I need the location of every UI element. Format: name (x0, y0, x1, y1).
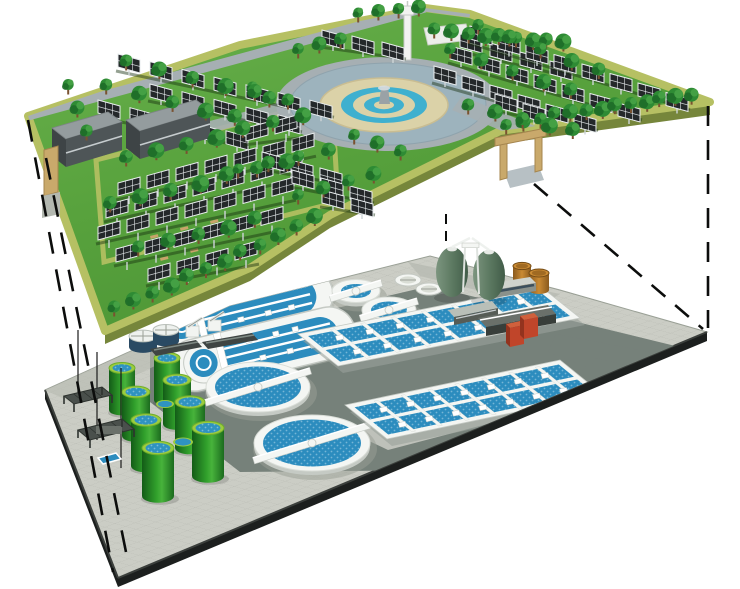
tree-canopy-light (522, 113, 529, 120)
tank-body (142, 448, 174, 503)
tree-canopy-light (192, 72, 199, 79)
tree-canopy-light (586, 105, 593, 112)
tree-canopy-light (505, 119, 511, 125)
tree-canopy-light (272, 116, 279, 123)
tree-canopy-light (318, 38, 326, 46)
tree-canopy-light (277, 229, 285, 237)
tree-canopy-light (540, 113, 547, 120)
tree-canopy-light (171, 279, 180, 288)
cutaway-scene-svg (0, 0, 740, 589)
tree-canopy-light (322, 182, 330, 190)
ground-mixer-pad (156, 400, 174, 408)
ditch-weir-box (272, 331, 279, 337)
tree-canopy-light (450, 25, 458, 33)
tree-canopy-light (205, 263, 212, 270)
tree-canopy-light (172, 96, 179, 103)
egg-cap (447, 247, 457, 252)
tree-canopy-light (569, 105, 577, 113)
scene-illustration (0, 0, 740, 589)
tree-canopy-light (348, 175, 355, 182)
tree-canopy-light (155, 144, 164, 153)
tree-canopy-light (268, 92, 275, 99)
tree-canopy-light (494, 105, 502, 113)
tree-canopy-shade (392, 7, 399, 14)
ditch-weir-box (223, 299, 230, 305)
tree-canopy-light (449, 43, 455, 49)
tree-canopy-light (545, 33, 552, 40)
tower-shaft (404, 14, 411, 60)
clarifier-hub (352, 287, 360, 295)
tree-canopy-light (186, 269, 194, 277)
tree-canopy-light (216, 131, 225, 140)
tree-canopy-light (398, 3, 404, 9)
tree-canopy-light (137, 241, 144, 248)
tree-canopy-light (226, 168, 234, 176)
ditch-weir-box (287, 348, 294, 354)
tree-canopy-shade (292, 154, 299, 161)
tree-canopy-light (571, 54, 579, 62)
ditch-weir-box (292, 326, 299, 332)
tree-canopy-light (418, 1, 426, 9)
tree-canopy-shade (444, 47, 451, 54)
tree-canopy-light (562, 35, 571, 44)
tree-canopy-light (572, 123, 580, 131)
tree-canopy-light (357, 8, 363, 14)
tank-water-texture (113, 364, 132, 372)
tree-canopy-light (353, 129, 359, 135)
tree-canopy-light (512, 65, 519, 72)
mixer-water (175, 438, 191, 445)
tree-canopy-light (259, 239, 266, 246)
tree-canopy-light (242, 122, 250, 130)
tree-canopy-light (373, 167, 381, 175)
tree-canopy-light (125, 151, 132, 158)
hopper-body (208, 320, 221, 331)
hopper-body (186, 326, 199, 337)
tree-canopy-light (167, 234, 175, 242)
tree-canopy-light (200, 177, 209, 186)
tree-canopy-light (508, 31, 516, 39)
tree-canopy-light (254, 212, 262, 220)
clarifier (204, 362, 317, 421)
tree-canopy-light (254, 85, 262, 93)
clarifier-hub (308, 439, 316, 447)
tree-canopy-light (228, 221, 237, 230)
tree-canopy-shade (348, 133, 355, 140)
tree-canopy-light (132, 293, 140, 301)
gantry-platform (462, 243, 479, 248)
tree (62, 79, 74, 95)
tree-canopy-light (377, 5, 384, 12)
ditch-weir-box (238, 316, 245, 322)
tree-canopy-light (328, 144, 336, 152)
tree-canopy-light (691, 89, 699, 97)
tree-canopy-light (125, 55, 132, 62)
tree-canopy-light (224, 255, 232, 263)
tank-water-texture (146, 443, 171, 453)
entrance-gate-east (495, 128, 546, 188)
tree-canopy-light (467, 99, 474, 106)
tree-canopy-shade (500, 123, 507, 130)
tree-canopy-light (158, 63, 166, 71)
tree-canopy-light (477, 19, 483, 25)
tree-canopy-light (480, 54, 488, 62)
ditch-weir-box (270, 288, 277, 294)
tree-canopy-light (152, 287, 159, 294)
sludge-digester-egg (471, 250, 507, 306)
tree-canopy-light (67, 79, 73, 85)
tree-canopy-shade (62, 83, 69, 90)
tree-canopy-light (267, 157, 274, 164)
tree-canopy-light (433, 23, 440, 30)
tree-canopy-light (400, 145, 407, 152)
tree-canopy-light (138, 87, 146, 95)
tree-canopy-light (186, 138, 194, 146)
tank-water-texture (196, 423, 221, 433)
tree-canopy-light (570, 83, 577, 90)
tree-canopy-light (598, 63, 605, 70)
fountain-spray (378, 86, 390, 91)
covered-tank-small (395, 274, 421, 286)
tree-canopy-shade (292, 47, 299, 54)
green-storage-tank (141, 441, 179, 504)
tree-canopy-light (225, 80, 234, 89)
tree-canopy-light (658, 92, 665, 99)
ditch-weir-box (260, 354, 267, 360)
tree-canopy-light (340, 33, 347, 40)
tree-canopy-light (540, 43, 547, 50)
tree-canopy-shade (233, 167, 239, 173)
drum-top-inner (532, 270, 546, 276)
pump-house-side (506, 324, 510, 347)
ground-mixer-pad (173, 438, 193, 447)
covered-tank-small (416, 283, 442, 295)
tree-canopy-light (674, 90, 683, 99)
tree-canopy-light (237, 164, 243, 170)
tree-canopy-light (298, 151, 304, 157)
tank-water-texture (126, 388, 147, 396)
tree-canopy-light (302, 109, 311, 118)
tank-water-texture (179, 397, 202, 406)
tree-canopy-light (614, 98, 622, 106)
tree-canopy-light (205, 104, 214, 113)
tree-canopy-light (543, 75, 551, 83)
tree-canopy-light (234, 110, 242, 118)
tank-water-texture (135, 415, 158, 424)
tree-canopy-light (297, 189, 303, 195)
tank-water-texture (158, 354, 177, 362)
tree-canopy-light (109, 197, 116, 204)
pump-house-front (524, 317, 538, 339)
tree-canopy-light (553, 107, 560, 114)
tree-canopy-shade (292, 193, 299, 200)
ditch-weir-box (265, 310, 272, 316)
tree-canopy-light (296, 220, 303, 227)
tree-canopy-light (549, 119, 558, 128)
clarifier-hub (385, 306, 393, 314)
tree-canopy-light (287, 94, 294, 101)
tree-canopy-light (105, 79, 112, 86)
tree-canopy-light (314, 210, 323, 219)
tree-canopy-light (630, 98, 637, 105)
inlet-tank (153, 325, 179, 347)
tree-canopy-shade (353, 11, 359, 17)
mixer-water (158, 401, 172, 407)
tree-canopy-light (86, 125, 93, 132)
tree-canopy-light (376, 137, 384, 145)
tree-canopy-light (113, 301, 120, 308)
tree-canopy-light (198, 228, 205, 235)
egg-cap (484, 250, 494, 255)
clarifier (253, 415, 377, 480)
green-storage-tank (191, 421, 229, 484)
tree-canopy-light (297, 43, 303, 49)
clarifier-hub (254, 383, 262, 391)
pump-house-side (520, 316, 524, 339)
ditch-weir-box (250, 293, 257, 299)
tree-canopy-shade (472, 23, 479, 30)
tank-body (192, 428, 224, 483)
tree-canopy-light (76, 102, 84, 110)
tree-canopy-light (139, 190, 148, 199)
tree-canopy-light (239, 245, 246, 252)
tank-water-texture (167, 376, 188, 384)
tree-canopy-light (170, 184, 178, 192)
ditch-weir-box (288, 304, 295, 310)
gate-pillar (44, 146, 58, 196)
drum-top-inner (516, 264, 528, 269)
